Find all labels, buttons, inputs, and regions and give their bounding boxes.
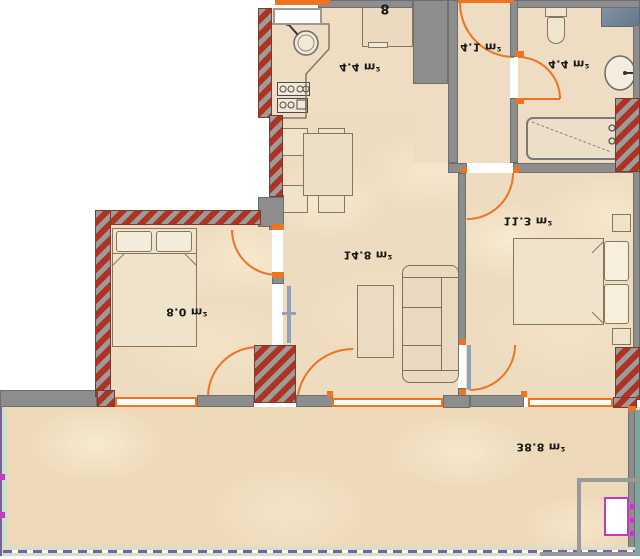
room-label-hall: 4.1 m² (460, 41, 501, 54)
terrace-partition-line (577, 478, 640, 482)
sofa-armrest-line (402, 370, 459, 371)
magenta-marker (630, 531, 635, 536)
terrace-teal-strip (635, 410, 640, 556)
room-label-kitchen: 4.4 m² (339, 61, 380, 74)
exterior-wall-band (0, 390, 97, 407)
skylight-box (604, 497, 629, 536)
room-label-bathroom: 4.4 m² (548, 58, 589, 71)
hatched-wall (258, 8, 272, 118)
door-jamb (272, 224, 284, 230)
wall (470, 395, 524, 407)
bed-pillow (604, 284, 629, 324)
wall (448, 0, 458, 163)
wall (458, 173, 466, 345)
wall-column (413, 0, 448, 84)
sofa-back-line (441, 277, 442, 371)
room-label-living-room: 14.8 m² (343, 249, 392, 262)
double-bed (513, 238, 604, 325)
floor-plan: 4.4 m² 4.1 m² 4.4 m² 14.8 m² 11.3 m² 8.0… (0, 0, 640, 559)
hatched-pier (254, 345, 296, 403)
wall-pier (443, 395, 470, 408)
bedroom-left-window (115, 397, 197, 407)
sofa-seat-line (402, 345, 441, 346)
door-jamb (272, 272, 284, 278)
sofa (402, 265, 459, 383)
room-label-bedroom-left: 8.0 m² (166, 306, 207, 319)
magenta-marker (630, 504, 635, 509)
terrace-left-rail-green (2, 407, 7, 556)
door-leaf (467, 345, 471, 390)
hatched-wall (615, 347, 640, 400)
sofa-armrest-line (402, 277, 459, 278)
door-jamb (459, 339, 466, 345)
wall (197, 395, 254, 407)
nightstand (612, 328, 631, 345)
hatched-wall (95, 210, 111, 397)
rail-post-marker (0, 474, 5, 480)
bed-pillow (604, 241, 629, 281)
terrace-partition-line (577, 482, 581, 556)
entrance-threshold (458, 0, 514, 3)
bed-headboard-line (112, 253, 197, 254)
wall (633, 25, 640, 100)
wall (510, 98, 518, 163)
room-label-terrace: 38.8 m² (516, 441, 565, 454)
door-jamb (513, 167, 519, 173)
door-jamb (459, 389, 466, 395)
terrace-floor (0, 407, 640, 556)
wall (318, 0, 413, 8)
wall (633, 170, 640, 348)
window-jamb (521, 391, 527, 397)
wall-corner (258, 197, 284, 227)
dining-table (303, 133, 353, 196)
window-jamb (327, 391, 333, 397)
bed-pillow (116, 231, 152, 252)
rail-post-marker (0, 512, 5, 518)
bathtub (526, 117, 621, 160)
kitchen-window-band (275, 0, 330, 5)
oven-icon (277, 98, 308, 113)
wall (510, 0, 518, 57)
hall-floor (458, 3, 510, 163)
boiler-symbol: 8 (380, 1, 389, 16)
door-jamb (516, 51, 524, 57)
coffee-table (357, 285, 394, 358)
stove-icon (277, 82, 310, 96)
sofa-seat-line (402, 307, 441, 308)
living-terrace-window (332, 398, 443, 407)
hatched-pier (97, 390, 115, 407)
bed-pillow (156, 231, 192, 252)
bedroom-right-terrace-window (528, 398, 613, 407)
terrace-bottom-gray-line (540, 552, 640, 556)
kitchen-window (273, 8, 322, 25)
hatched-wall (95, 210, 261, 225)
cabinet-handle (368, 42, 388, 48)
room-label-bedroom-right: 11.3 m² (503, 215, 552, 228)
door-jamb (461, 167, 467, 173)
door-leaf-handle (282, 312, 296, 315)
magenta-marker (630, 518, 635, 523)
hatched-wall (269, 115, 283, 197)
door-jamb (516, 98, 524, 104)
toilet-bowl (547, 17, 565, 44)
wall (516, 0, 640, 8)
nightstand (612, 214, 631, 232)
hatched-wall (615, 98, 640, 172)
